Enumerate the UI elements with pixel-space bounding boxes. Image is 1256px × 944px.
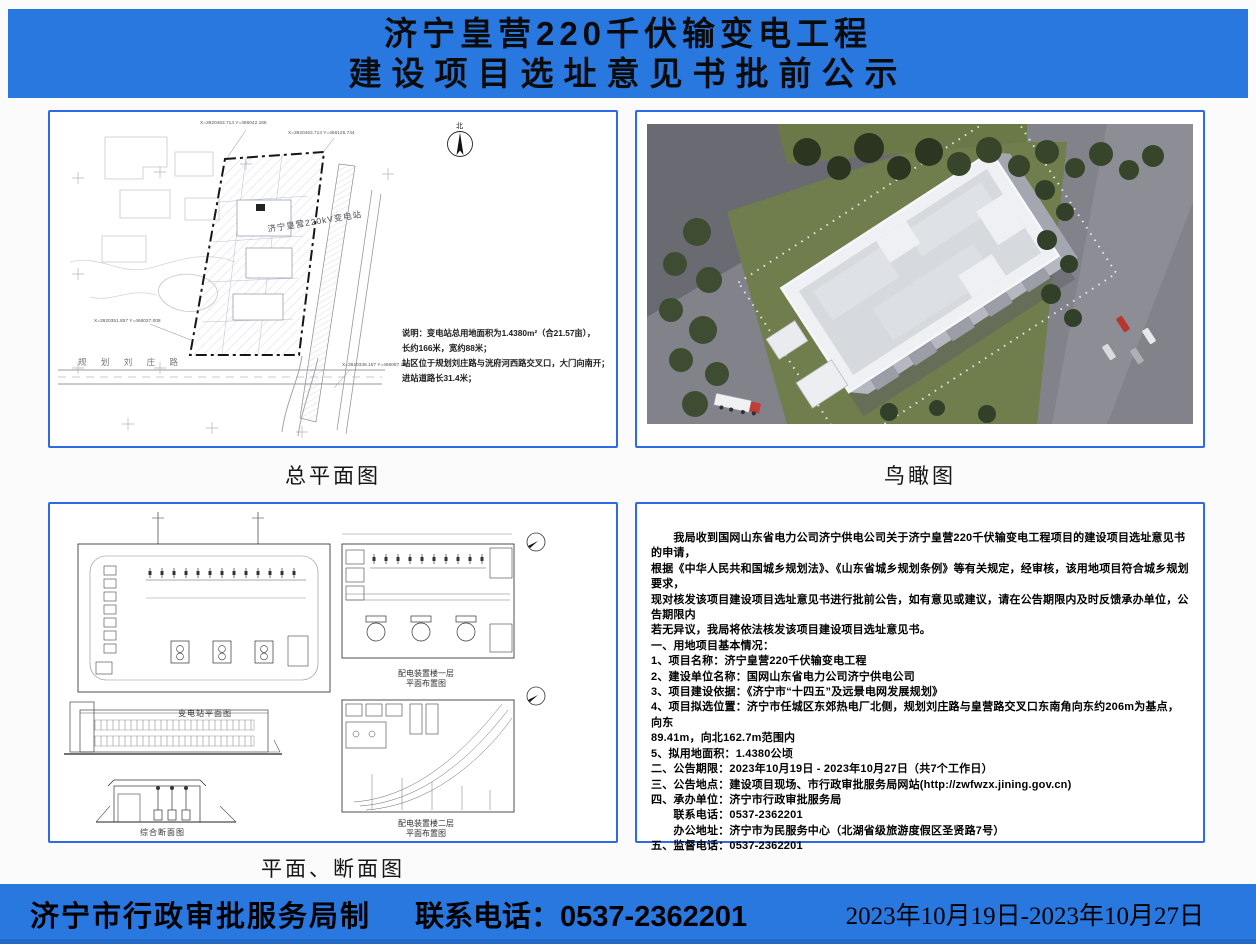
floor1-caption-line2: 平面布置图 — [406, 678, 446, 688]
long-section-drawing — [64, 702, 282, 754]
notice-body: 我局收到国网山东省电力公司济宁供电公司关于济宁皇营220千伏输变电工程项目的建设… — [637, 504, 1203, 855]
north-arrow: 北 — [448, 122, 473, 157]
north-symbol-2 — [527, 687, 545, 705]
title-banner: 济宁皇营220千伏输变电工程 建设项目选址意见书批前公示 — [8, 9, 1248, 98]
floor1-caption-line1: 配电装置楼一层 — [398, 668, 454, 678]
footer-issuer: 济宁市行政审批服务局制 — [30, 893, 371, 935]
floor2-caption-line1: 配电装置楼二层 — [398, 818, 454, 828]
footer-date-range: 2023年10月19日-2023年10月27日 — [846, 896, 1204, 932]
svg-text:X=3920463.714 Y=466125.744: X=3920463.714 Y=466125.744 — [288, 130, 355, 136]
road-label: 规 划 刘 庄 路 — [78, 357, 184, 367]
plans-caption: 平面、断面图 — [48, 853, 618, 883]
aerial-view-caption: 鸟瞰图 — [635, 460, 1205, 490]
north-symbol-1 — [527, 533, 545, 551]
svg-text:X=3920339.157 Y=466087.201: X=3920339.157 Y=466087.201 — [342, 362, 409, 368]
svg-text:长约166米，宽约88米；: 长约166米，宽约88米； — [402, 343, 491, 354]
plans-drawing: 变电站平面图 配电装置楼一层 平面布置图 — [50, 504, 616, 841]
planned-road-south: 规 划 刘 庄 路 — [58, 356, 385, 436]
svg-text:进站道路长31.4米；: 进站道路长31.4米； — [402, 373, 476, 384]
svg-text:X=3920463.714 Y=466042.166: X=3920463.714 Y=466042.166 — [200, 120, 267, 126]
floor2-plan-drawing: 配电装置楼二层 平面布置图 — [342, 687, 545, 838]
svg-text:说明：变电站总用地面积为1.4380m²（合21.57亩），: 说明：变电站总用地面积为1.4380m²（合21.57亩）， — [402, 328, 595, 338]
notice-panel: 我局收到国网山东省电力公司济宁供电公司关于济宁皇营220千伏输变电工程项目的建设… — [635, 502, 1205, 843]
station-plan-drawing: 变电站平面图 — [78, 512, 330, 718]
svg-text:X=3920351.857 Y=466037.008: X=3920351.857 Y=466037.008 — [94, 318, 161, 324]
site-plan-drawing: 济宁皇营220kV变电站 规 划 刘 庄 路 X=3920463.714 Y=4… — [50, 112, 616, 446]
floor2-caption-line2: 平面布置图 — [406, 828, 446, 838]
page-title-line1: 济宁皇营220千伏输变电工程 — [384, 14, 872, 54]
overall-section-drawing: 综合断面图 — [96, 780, 236, 837]
floor1-plan-drawing: 配电装置楼一层 平面布置图 — [342, 533, 545, 688]
footer-bar: 济宁市行政审批服务局制 联系电话：0537-2362201 2023年10月19… — [0, 884, 1256, 944]
section-bushings — [154, 786, 190, 820]
page-title-line2: 建设项目选址意见书批前公示 — [349, 54, 908, 94]
aerial-view-panel — [635, 110, 1205, 448]
site-plan-note: 说明：变电站总用地面积为1.4380m²（合21.57亩）， 长约166米，宽约… — [402, 328, 609, 384]
aerial-render — [637, 112, 1203, 446]
site-plan-panel: 济宁皇营220kV变电站 规 划 刘 庄 路 X=3920463.714 Y=4… — [48, 110, 618, 448]
svg-text:北: 北 — [456, 122, 463, 130]
plans-panel: 变电站平面图 配电装置楼一层 平面布置图 — [48, 502, 618, 843]
footer-phone: 联系电话：0537-2362201 — [415, 893, 747, 935]
overall-section-caption: 综合断面图 — [140, 827, 185, 837]
svg-text:站区位于规划刘庄路与洸府河西路交叉口，大门向南开；: 站区位于规划刘庄路与洸府河西路交叉口，大门向南开； — [402, 358, 609, 369]
site-plan-caption: 总平面图 — [48, 460, 618, 490]
